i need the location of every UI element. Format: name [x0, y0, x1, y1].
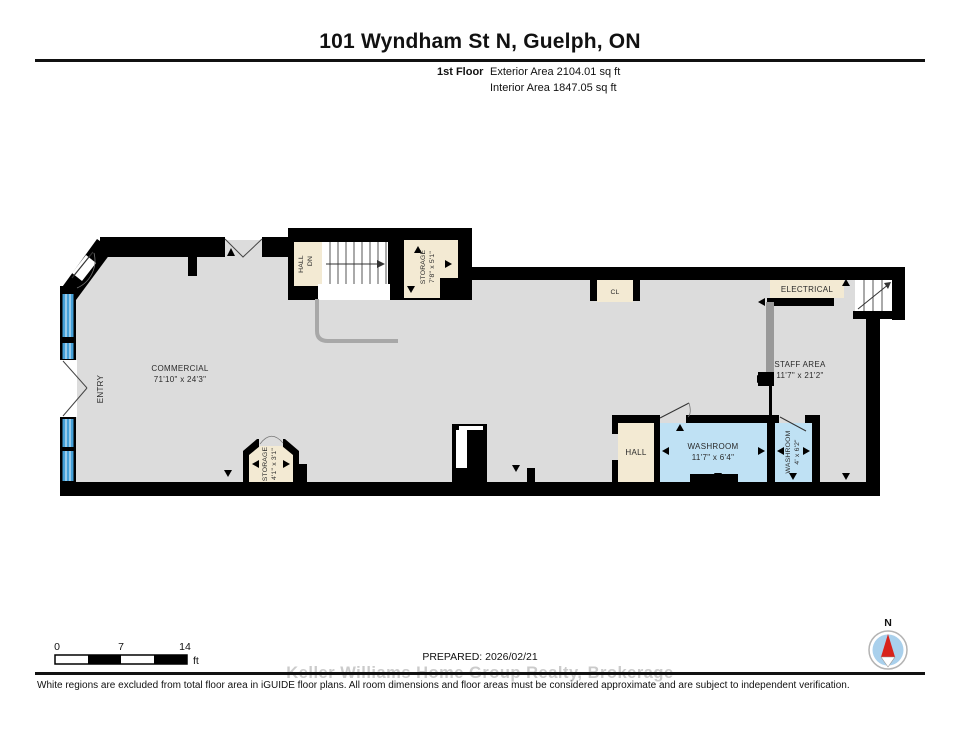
entry-label: ENTRY [96, 374, 105, 403]
storage-bottom-label: STORAGE [262, 446, 269, 481]
staff-area-dims: 11'7" x 21'2" [776, 371, 823, 380]
hall-dn-label: HALL [298, 255, 305, 273]
prepared-date: PREPARED: 2026/02/21 [0, 651, 960, 663]
disclaimer-text: White regions are excluded from total fl… [37, 680, 850, 691]
stairs-top-right [855, 280, 892, 311]
footer-divider [35, 672, 925, 675]
staff-area-label: STAFF AREA [774, 360, 826, 369]
hall-label: HALL [625, 448, 646, 457]
storage-top-dims: 7'8" x 5'1" [429, 251, 436, 283]
storage-top-label: STORAGE [420, 249, 427, 284]
top-right-wall [460, 267, 905, 280]
floor-plan-svg: COMMERCIAL 71'10" x 24'3" ENTRY HALL DN … [0, 0, 960, 742]
storage-bottom-dims: 4'1" x 3'1" [271, 448, 278, 480]
electrical-label: ELECTRICAL [781, 285, 834, 294]
stairs-main [318, 242, 390, 300]
washroom-small-label: WASHROOM [785, 430, 792, 473]
floor-plan-page: 101 Wyndham St N, Guelph, ON 1st Floor E… [0, 0, 960, 742]
commercial-label: COMMERCIAL [151, 364, 208, 373]
top-double-door [225, 239, 262, 257]
washroom-small-dims: 4' x 6'2" [794, 439, 801, 465]
washroom-main-dims: 11'7" x 6'4" [692, 453, 734, 462]
commercial-dims: 71'10" x 24'3" [154, 375, 207, 384]
closet-label: CL [610, 289, 619, 296]
washroom-main-label: WASHROOM [688, 442, 739, 451]
right-wall [866, 319, 880, 496]
hall-dn-direction: DN [307, 256, 314, 266]
compass-north-label: N [884, 617, 892, 629]
